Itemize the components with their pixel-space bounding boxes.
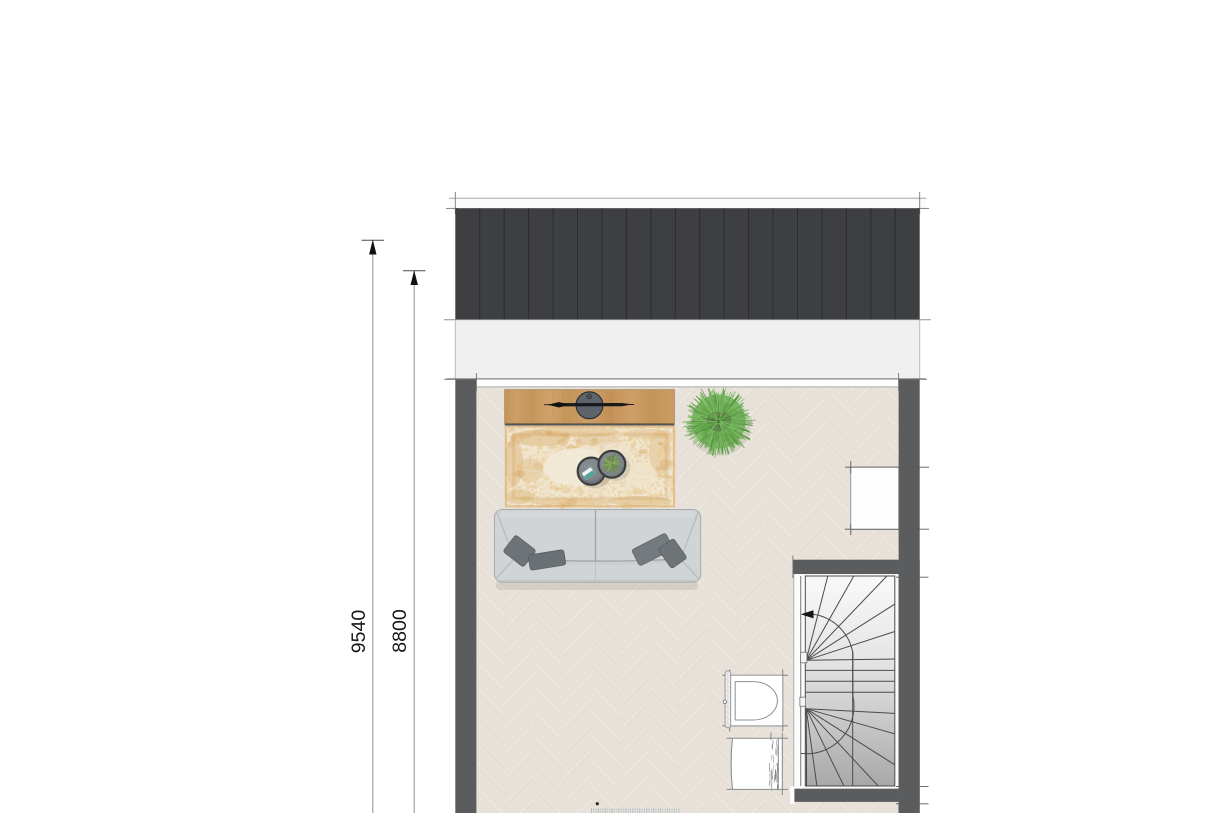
svg-text:8800: 8800 <box>389 609 411 653</box>
svg-text:9540: 9540 <box>348 610 370 654</box>
